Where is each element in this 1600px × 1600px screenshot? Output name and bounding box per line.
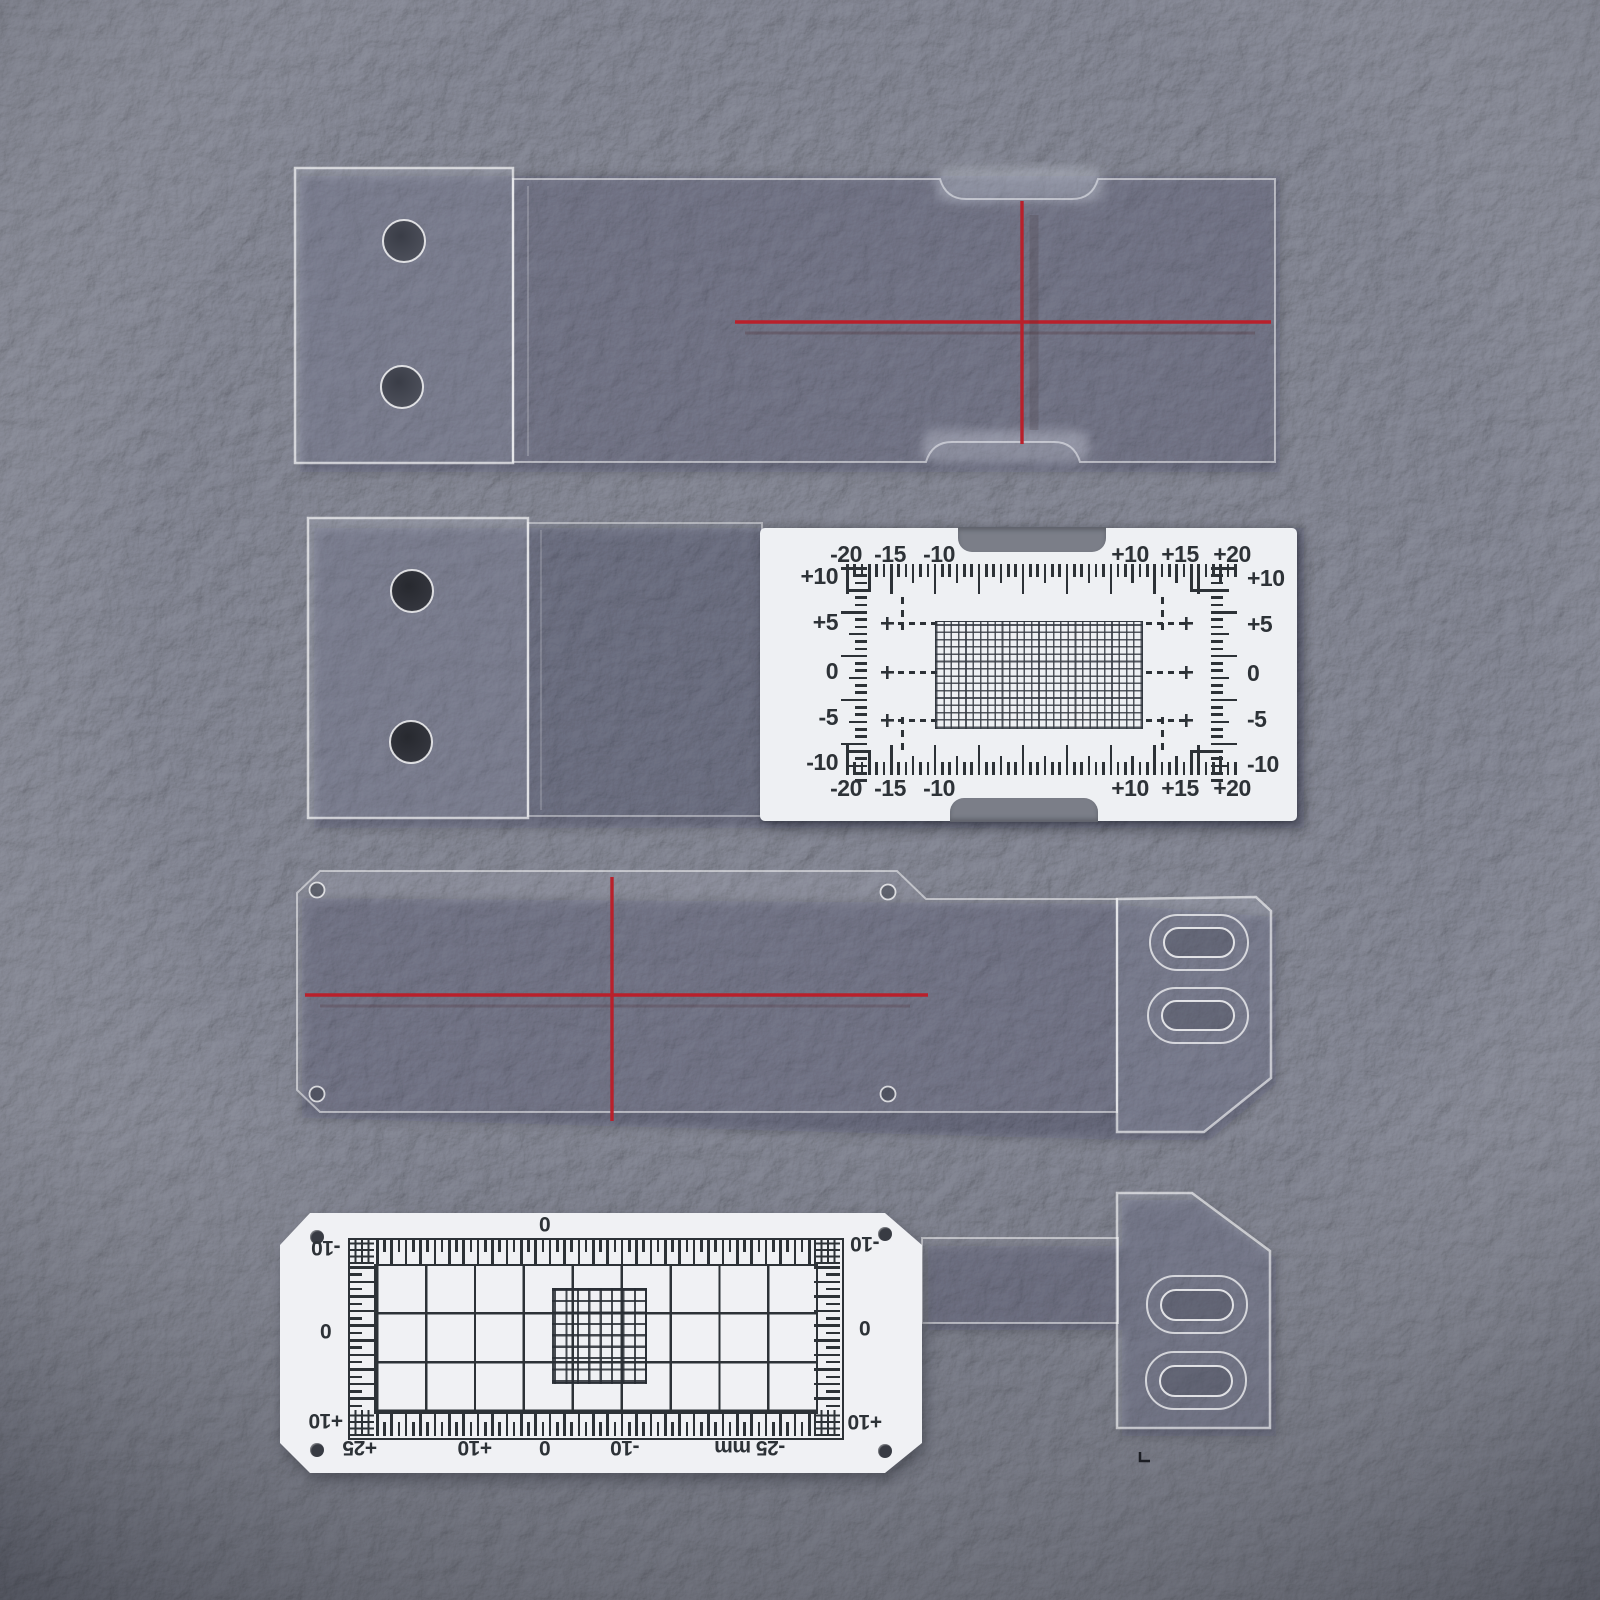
ruler-dash [348, 1368, 374, 1371]
ruler-tick [1168, 762, 1171, 775]
scale-label-top: +15 [1153, 543, 1207, 566]
ruler-tick [934, 745, 937, 775]
scale-card-lower: 0-100+10-100+10+25+100-10-25 mm [280, 1213, 922, 1473]
ruler-tick [419, 1238, 422, 1264]
ruler-dash [1211, 662, 1223, 665]
ruler-dash [855, 662, 867, 665]
scale-label-right: +10 [835, 1411, 895, 1432]
ruler-dash [855, 596, 867, 599]
ruler-dash [1211, 567, 1237, 570]
dashed-stub [898, 719, 940, 722]
ruler-tick [786, 1422, 789, 1436]
ruler-dash [849, 721, 867, 724]
frosted-notch-bottom [922, 430, 1090, 464]
ruler-tick [729, 1422, 732, 1436]
ruler-dash [855, 691, 867, 694]
ruler-tick [1036, 564, 1039, 577]
ruler-dash [855, 640, 867, 643]
ruler-tick [1234, 762, 1237, 775]
scale-label-top: -10 [912, 543, 966, 566]
ruler-dash [826, 1288, 840, 1291]
ruler-tick [599, 1422, 602, 1436]
oval-slot [1162, 1001, 1234, 1030]
card-notch-bottom [950, 798, 1098, 822]
scale-label-right: +10 [1247, 567, 1299, 590]
ruler-tick [1000, 756, 1003, 775]
ruler-tick [448, 1238, 451, 1264]
ruler-tick [1000, 564, 1003, 583]
ruler-tick [1066, 564, 1069, 594]
ruler-tick [1131, 756, 1134, 775]
ruler-dash [841, 567, 867, 570]
scale-label-left: 0 [788, 660, 838, 683]
ruler-dash [1211, 611, 1237, 614]
ruler-tick [462, 1238, 465, 1264]
ruler-dash [348, 1383, 374, 1386]
ruler-dash [841, 655, 867, 658]
dashed-stub [1146, 671, 1188, 674]
ruler-tick [513, 1422, 516, 1436]
ruler-tick [570, 1422, 573, 1436]
scale-label-right: 0 [835, 1317, 895, 1338]
ruler-tick [606, 1238, 609, 1264]
ruler-tick [1007, 762, 1010, 775]
ruler-tick [934, 564, 937, 594]
ruler-tick [1153, 745, 1156, 775]
ruler-tick [1080, 564, 1083, 577]
ruler-tick [614, 1238, 617, 1252]
ruler-tick [470, 1238, 473, 1252]
ruler-dash [1211, 735, 1223, 738]
ruler-dash [841, 699, 867, 702]
scale-label-top: +20 [1205, 543, 1259, 566]
ruler-tick [992, 762, 995, 775]
ruler-dash [855, 669, 867, 672]
ruler-dash [1211, 706, 1223, 709]
ruler-tick [412, 1422, 415, 1436]
ruler-tick [542, 1422, 545, 1436]
ruler-dash [348, 1405, 362, 1408]
oval-slot [1164, 928, 1234, 957]
ruler-tick [585, 1422, 588, 1436]
ruler-tick [772, 1238, 775, 1252]
ruler-dash [841, 743, 867, 746]
scale-label-bottom: +10 [1103, 777, 1157, 800]
ruler-tick [786, 1238, 789, 1252]
ruler-tick [470, 1422, 473, 1436]
mounting-hole [391, 570, 433, 612]
ruler-dash [826, 1361, 840, 1364]
ruler-tick [1175, 756, 1178, 775]
ruler-dash [1211, 589, 1229, 592]
ruler-tick [992, 564, 995, 577]
ruler-dash [826, 1273, 840, 1276]
ruler-tick [1058, 762, 1061, 775]
acrylic-tab-middle [308, 518, 528, 818]
ruler-tick [808, 1238, 811, 1264]
ruler-dash [841, 611, 867, 614]
ruler-tick [556, 1422, 559, 1436]
ruler-dash [348, 1266, 374, 1269]
ruler-dash [1211, 640, 1223, 643]
ruler-tick [1088, 564, 1091, 583]
ruler-dash [1211, 765, 1229, 768]
ruler-dash [855, 648, 867, 651]
ruler-dash [348, 1376, 362, 1379]
plus-marker [881, 617, 894, 630]
scale-label-top: +10 [1103, 543, 1157, 566]
crack-monitor-base-upper [308, 518, 762, 818]
acrylic-plate-large [297, 871, 1117, 1112]
ruler-tick [1088, 756, 1091, 775]
ruler-tick [883, 762, 886, 775]
oval-slot [1160, 1366, 1232, 1396]
ruler-dash [348, 1310, 374, 1313]
ruler-tick [383, 1238, 386, 1252]
ruler-tick [905, 762, 908, 775]
ruler-tick [592, 1238, 595, 1264]
ruler-tick [956, 756, 959, 775]
ruler-dash [826, 1346, 840, 1349]
ruler-tick [1183, 762, 1186, 775]
ruler-tick [398, 1238, 401, 1252]
ruler-tick [1110, 564, 1113, 594]
ruler-dash [1211, 713, 1223, 716]
ruler-tick [426, 1422, 429, 1436]
ruler-dash [348, 1295, 374, 1298]
ruler-tick [1014, 564, 1017, 577]
ruler-tick [978, 745, 981, 775]
ruler-dash [1211, 728, 1223, 731]
ruler-tick [628, 1238, 631, 1252]
scale-label-right: 0 [1247, 662, 1299, 685]
frosted-notch-top [936, 168, 1104, 202]
crack-monitor-top [295, 168, 1275, 464]
scale-label-left: 0 [296, 1320, 356, 1341]
ruler-tick [970, 564, 973, 577]
ruler-tick [678, 1238, 681, 1264]
ruler-tick [1029, 762, 1032, 775]
scale-label-left: -10 [788, 751, 838, 774]
scale-label-bottom: -10 [912, 777, 966, 800]
ruler-dash [348, 1303, 362, 1306]
ruler-tick [970, 762, 973, 775]
ruler-tick [794, 1238, 797, 1264]
scale-card-lower-wrap: 0-100+10-100+10+25+100-10-25 mm [280, 1213, 922, 1473]
ruler-tick [1007, 564, 1010, 577]
ruler-tick [801, 1422, 804, 1436]
ruler-dash [826, 1390, 840, 1393]
ruler-tick [707, 1238, 710, 1264]
ruler-tick [1139, 762, 1142, 775]
ruler-tick [1036, 762, 1039, 775]
ruler-tick [919, 762, 922, 775]
ruler-tick [1051, 564, 1054, 577]
ruler-tick [963, 762, 966, 775]
ruler-tick [599, 1238, 602, 1252]
ruler-tick [585, 1238, 588, 1252]
ruler-dash [1211, 677, 1229, 680]
ruler-tick [642, 1422, 645, 1436]
ruler-tick [534, 1238, 537, 1264]
ruler-tick [477, 1238, 480, 1264]
ruler-dash [1211, 618, 1223, 621]
ruler-tick [765, 1238, 768, 1264]
ruler-tick [628, 1422, 631, 1436]
scale-label-right: +5 [1247, 613, 1299, 636]
ruler-tick [1124, 762, 1127, 775]
ruler-dash [348, 1390, 362, 1393]
ruler-dash [855, 706, 867, 709]
ruler-tick [801, 1238, 804, 1252]
fine-measuring-grid [552, 1288, 647, 1384]
ruler-dash [1211, 648, 1223, 651]
scale-label-left: +10 [296, 1410, 356, 1431]
ruler-dash [826, 1376, 840, 1379]
ruler-dash [1211, 691, 1223, 694]
corner-mark [1190, 750, 1213, 770]
ruler-tick [484, 1238, 487, 1252]
scale-label-bottom: 0 [500, 1437, 590, 1458]
ruler-tick [1022, 745, 1025, 775]
ruler-tick [671, 1422, 674, 1436]
acrylic-plate-middle [528, 523, 762, 816]
ruler-tick [570, 1238, 573, 1252]
scale-label-bottom: +25 [315, 1437, 405, 1458]
ruler-tick [412, 1238, 415, 1252]
ruler-tick [686, 1238, 689, 1252]
ruler-dash [826, 1405, 840, 1408]
ruler-tick [772, 1422, 775, 1436]
mounting-hole [383, 220, 425, 262]
dashed-stub [1161, 714, 1164, 750]
ruler-tick [948, 762, 951, 775]
ruler-dash [1211, 655, 1237, 658]
ruler-dash [826, 1303, 840, 1306]
ruler-tick [1044, 564, 1047, 583]
ruler-tick [578, 1238, 581, 1264]
ruler-tick [912, 756, 915, 775]
ruler-tick [729, 1238, 732, 1252]
ruler-tick [1029, 564, 1032, 577]
ruler-dash [348, 1273, 362, 1276]
ruler-tick [434, 1238, 437, 1264]
ruler-tick [527, 1238, 530, 1252]
ruler-tick [614, 1422, 617, 1436]
dashed-stub [901, 594, 904, 630]
ruler-tick [1095, 564, 1098, 577]
ruler-tick [1066, 745, 1069, 775]
dashed-stub [1161, 594, 1164, 630]
ruler-tick [750, 1238, 753, 1264]
ruler-tick [1110, 745, 1113, 775]
ruler-dash [1211, 626, 1223, 629]
ruler-dash [855, 626, 867, 629]
ruler-tick [441, 1422, 444, 1436]
ruler-tick [664, 1238, 667, 1264]
dashed-stub [901, 714, 904, 750]
scale-label-left: +5 [788, 611, 838, 634]
ruler-tick [700, 1238, 703, 1252]
ruler-dash [855, 684, 867, 687]
corner-mark [1190, 572, 1213, 592]
ruler-tick [890, 745, 893, 775]
ruler-dash [348, 1361, 362, 1364]
ruler-tick [956, 564, 959, 583]
ruler-dash [348, 1346, 362, 1349]
ruler-tick [1014, 762, 1017, 775]
corner-hole [878, 1444, 892, 1458]
mounting-hole [381, 366, 423, 408]
ruler-dash [348, 1397, 374, 1400]
ruler-dash [1211, 633, 1229, 636]
ruler-dash [855, 728, 867, 731]
ruler-tick [441, 1238, 444, 1252]
ruler-dash [1211, 743, 1237, 746]
registration-mark [1140, 1452, 1150, 1461]
ruler-tick [650, 1238, 653, 1264]
ruler-tick [779, 1238, 782, 1264]
scale-label-left: -5 [788, 706, 838, 729]
ruler-tick [1022, 564, 1025, 594]
pin-hole [310, 1087, 325, 1102]
scale-label-bottom: +20 [1205, 777, 1259, 800]
oval-slot [1161, 1290, 1233, 1320]
mounting-hole [390, 721, 432, 763]
fine-measuring-grid [935, 621, 1143, 729]
pin-hole [881, 1087, 896, 1102]
ruler-tick [686, 1422, 689, 1436]
ruler-tick [383, 1422, 386, 1436]
scale-label-right: -10 [835, 1233, 895, 1254]
card-notch-top [958, 527, 1106, 552]
scale-card-upper: -20-20-15-15-10-10+10+10+15+15+20+20+10+… [760, 528, 1297, 821]
ruler-tick [875, 762, 878, 775]
ruler-dash [1211, 699, 1237, 702]
ruler-tick [1146, 762, 1149, 775]
ruler-dash [1211, 596, 1223, 599]
dashed-stub [1146, 622, 1188, 625]
scale-label-left: +10 [788, 565, 838, 588]
corner-mark [848, 750, 871, 770]
ruler-tick [556, 1238, 559, 1252]
ruler-tick [549, 1238, 552, 1264]
ruler-dash [1211, 684, 1223, 687]
ruler-dash [855, 735, 867, 738]
ruler-dash [348, 1354, 374, 1357]
ruler-dash [855, 604, 867, 607]
ruler-tick [1161, 762, 1164, 775]
ruler-tick [527, 1422, 530, 1436]
ruler-tick [506, 1238, 509, 1264]
ruler-tick [700, 1422, 703, 1436]
ruler-tick [426, 1238, 429, 1252]
ruler-dash [849, 633, 867, 636]
scale-label-bottom: -10 [580, 1437, 670, 1458]
pin-hole [881, 885, 896, 900]
ruler-tick [1153, 564, 1156, 594]
ruler-tick [398, 1422, 401, 1436]
ruler-tick [671, 1238, 674, 1252]
ruler-dash [1211, 721, 1229, 724]
ruler-tick [1073, 762, 1076, 775]
ruler-tick [1058, 564, 1061, 577]
ruler-tick [941, 762, 944, 775]
ruler-tick [758, 1422, 761, 1436]
ruler-tick [743, 1238, 746, 1252]
dashed-stub [1146, 719, 1188, 722]
ruler-tick [542, 1238, 545, 1252]
ruler-tick [642, 1238, 645, 1252]
ruler-tick [455, 1422, 458, 1436]
ruler-dash [1211, 669, 1223, 672]
acrylic-neck [922, 1238, 1118, 1323]
pin-hole [310, 883, 325, 898]
ruler-tick [498, 1238, 501, 1252]
scale-label-right: -10 [1247, 753, 1299, 776]
ruler-tick [455, 1238, 458, 1252]
scale-label-top: 0 [525, 1213, 565, 1234]
ruler-dash [1211, 604, 1223, 607]
ruler-tick [513, 1238, 516, 1252]
scale-label-right: -5 [1247, 708, 1299, 731]
scale-label-left: -10 [296, 1237, 356, 1258]
ruler-tick [985, 762, 988, 775]
ruler-dash [348, 1281, 374, 1284]
ruler-tick [890, 564, 893, 594]
ruler-tick [498, 1422, 501, 1436]
dashed-stub [898, 622, 940, 625]
ruler-tick [736, 1238, 739, 1264]
ruler-tick [1044, 756, 1047, 775]
ruler-tick [621, 1238, 624, 1264]
ruler-tick [978, 564, 981, 594]
ruler-tick [722, 1238, 725, 1264]
ruler-tick [376, 1238, 379, 1264]
ruler-tick [897, 762, 900, 775]
plus-marker [881, 714, 894, 727]
ruler-tick [912, 564, 915, 583]
ruler-tick [714, 1422, 717, 1436]
crack-monitor-plate-third [297, 871, 1271, 1132]
ruler-tick [1073, 564, 1076, 577]
photo-scene: -20-20-15-15-10-10+10+10+15+15+20+20+10+… [0, 0, 1600, 1600]
ruler-tick [405, 1238, 408, 1264]
scale-label-bottom: -15 [863, 777, 917, 800]
ruler-tick [491, 1238, 494, 1264]
acrylic-tab-top [295, 168, 513, 463]
scale-label-top: -15 [863, 543, 917, 566]
plus-marker [881, 666, 894, 679]
ruler-tick [1102, 762, 1105, 775]
ruler-tick [390, 1238, 393, 1264]
ruler-tick [714, 1238, 717, 1252]
ruler-dash [855, 618, 867, 621]
ruler-tick [985, 564, 988, 577]
ruler-tick [563, 1238, 566, 1264]
ruler-tick [1051, 762, 1054, 775]
corner-mark [848, 572, 871, 592]
scale-label-bottom: +15 [1153, 777, 1207, 800]
ruler-tick [693, 1238, 696, 1264]
dashed-stub [898, 671, 940, 674]
ruler-tick [927, 762, 930, 775]
ruler-tick [520, 1238, 523, 1264]
ruler-tick [743, 1422, 746, 1436]
ruler-dash [855, 713, 867, 716]
ruler-tick [1117, 762, 1120, 775]
ruler-tick [484, 1422, 487, 1436]
